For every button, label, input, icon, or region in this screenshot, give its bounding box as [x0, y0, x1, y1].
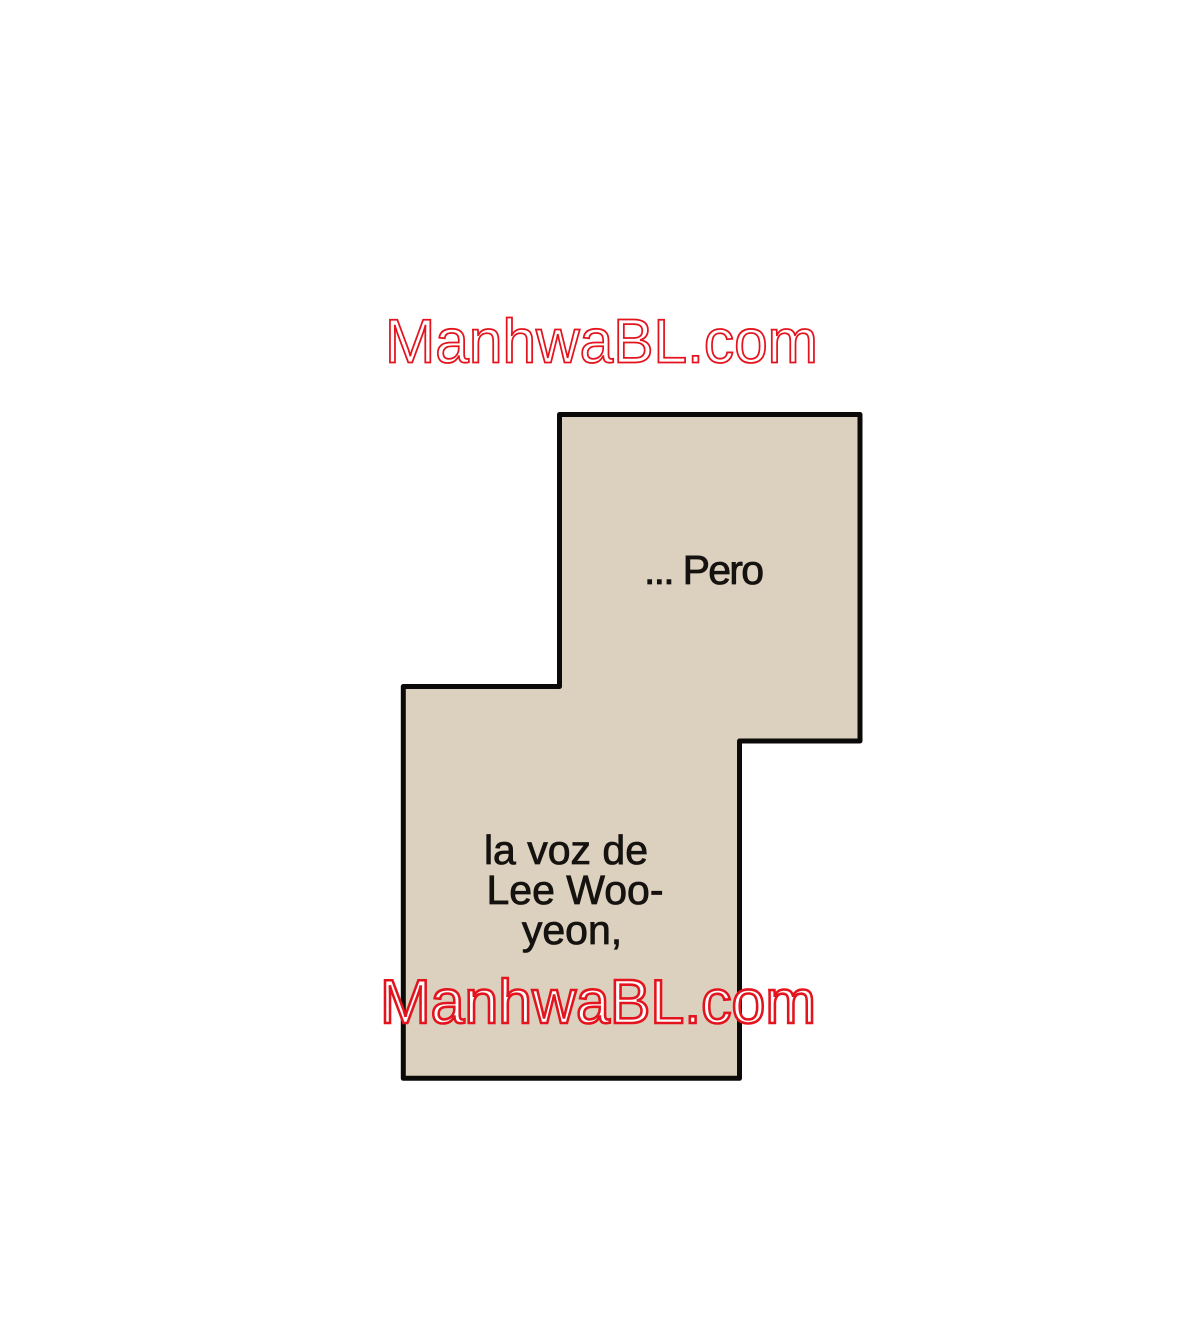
svg-text:ManhwaBL.com: ManhwaBL.com [385, 308, 818, 377]
svg-text:... Pero: ... Pero [644, 547, 764, 593]
svg-text:ManhwaBL.com: ManhwaBL.com [380, 968, 816, 1037]
svg-text:yeon,: yeon, [522, 907, 622, 953]
